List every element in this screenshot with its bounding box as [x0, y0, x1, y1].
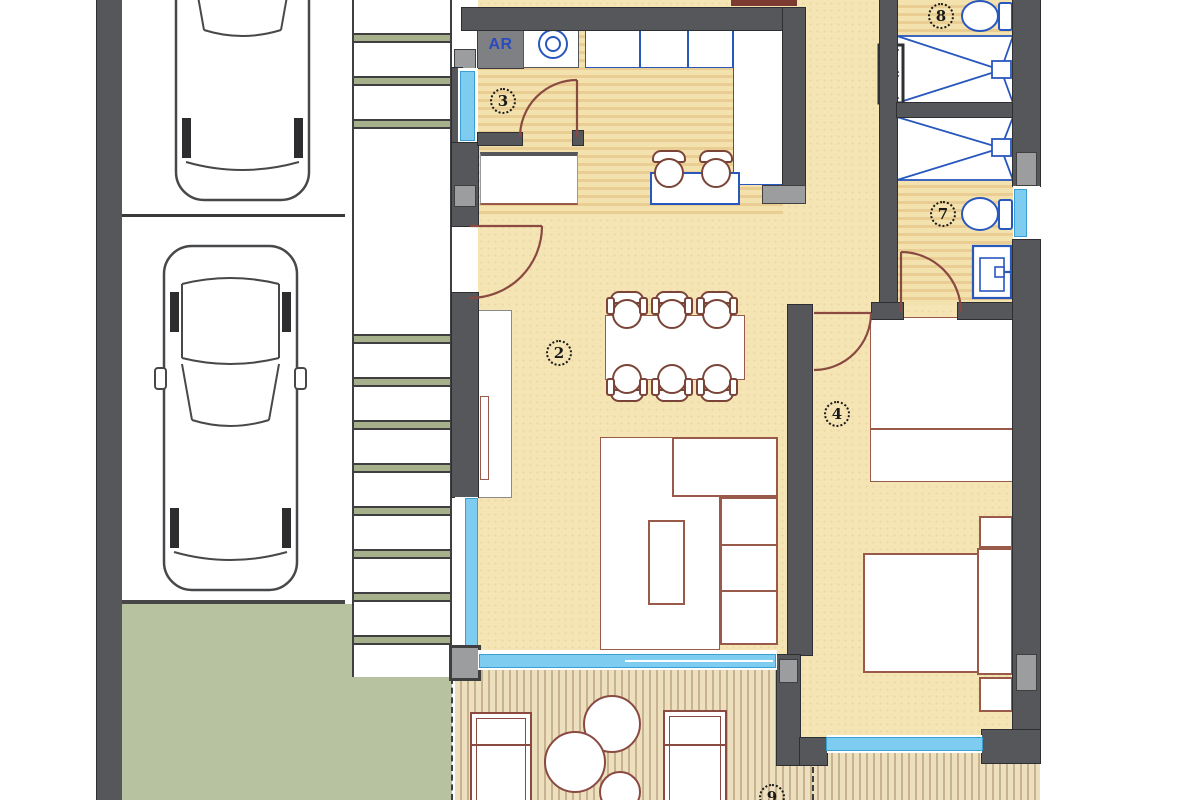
west-wall-c	[452, 293, 478, 497]
room-label-living-dining: 2	[546, 340, 572, 366]
kitchen-partition-wall	[478, 133, 522, 145]
kitchen-east-wall	[783, 8, 805, 188]
bathroom2-south-wall-right	[958, 303, 1015, 319]
bed-headboard	[977, 548, 1013, 675]
dining-chair	[698, 356, 736, 402]
lounge-chair	[470, 712, 532, 800]
lounge-chair-inner	[669, 716, 721, 800]
sofa-chaise	[672, 437, 778, 497]
bar-stool	[650, 150, 688, 196]
garden-lawn-under-stairs	[345, 677, 452, 800]
west-wall-b	[452, 143, 478, 226]
nightstand	[979, 516, 1013, 548]
east-sill-bottom	[1017, 655, 1036, 690]
kitchen-east-sill	[763, 186, 805, 203]
dining-chair	[653, 356, 691, 402]
staircase	[352, 0, 452, 677]
terrace-section-boundary	[812, 767, 814, 800]
parking-area	[122, 0, 352, 600]
bedroom-south-block	[982, 730, 1040, 763]
garden-lawn	[122, 604, 355, 800]
bedroom-sliding-door	[827, 738, 982, 750]
dining-chair	[608, 356, 646, 402]
west-sill-top	[455, 50, 475, 68]
dining-chair	[608, 291, 646, 337]
bathroom2-window	[1015, 190, 1026, 236]
bar-stool	[697, 150, 735, 196]
kitchen-door-post	[573, 131, 583, 145]
stair-landing	[354, 160, 450, 302]
garden-terrace-boundary	[451, 678, 453, 800]
room-label-kitchen: 3	[490, 88, 516, 114]
terrace-wall-sill	[780, 660, 797, 682]
entry-cabinet	[480, 152, 578, 205]
north-wall	[462, 8, 805, 30]
site-boundary-wall	[97, 0, 122, 800]
laundry-closet-label: AR	[488, 36, 512, 54]
bathrooms-west-wall	[880, 0, 897, 317]
wardrobe-divider	[871, 428, 1012, 430]
dining-chair	[653, 291, 691, 337]
west-sill-mid	[455, 186, 475, 206]
lounge-chair-inner	[476, 718, 526, 800]
coffee-table	[648, 520, 685, 605]
bathroom2-south-wall-left	[872, 303, 903, 319]
floor-plan: AR	[0, 0, 1200, 800]
bathroom2-floor	[897, 180, 1013, 305]
kitchen-window	[461, 72, 474, 140]
sofa-cushion-line	[722, 590, 776, 592]
room-label-bathroom-2: 7	[930, 201, 956, 227]
entry-threshold	[731, 0, 797, 6]
living-slider-overlap	[625, 660, 773, 662]
east-sill-top	[1017, 153, 1036, 185]
bedroom-south-stub	[800, 738, 827, 765]
tv	[480, 396, 489, 480]
sofa-seats	[720, 497, 778, 645]
room-label-bedroom: 4	[824, 401, 850, 427]
lounge-chair	[663, 710, 727, 800]
living-bedroom-wall	[788, 305, 812, 655]
west-sill-bottom	[452, 648, 478, 678]
kitchen-counter-side	[733, 22, 783, 185]
dining-chair	[698, 291, 736, 337]
washing-machine-drum-inner	[545, 36, 561, 52]
room-label-bathroom-1: 8	[928, 3, 954, 29]
wardrobe	[870, 317, 1013, 482]
shower-divider-wall	[897, 103, 1013, 117]
sofa-cushion-line	[722, 544, 776, 546]
nightstand	[979, 677, 1013, 712]
bathroom1-floor	[897, 0, 1013, 38]
bed-mattress	[863, 553, 980, 673]
living-window	[466, 499, 477, 650]
round-side-table	[544, 731, 606, 793]
parking-divider-line	[122, 214, 345, 217]
